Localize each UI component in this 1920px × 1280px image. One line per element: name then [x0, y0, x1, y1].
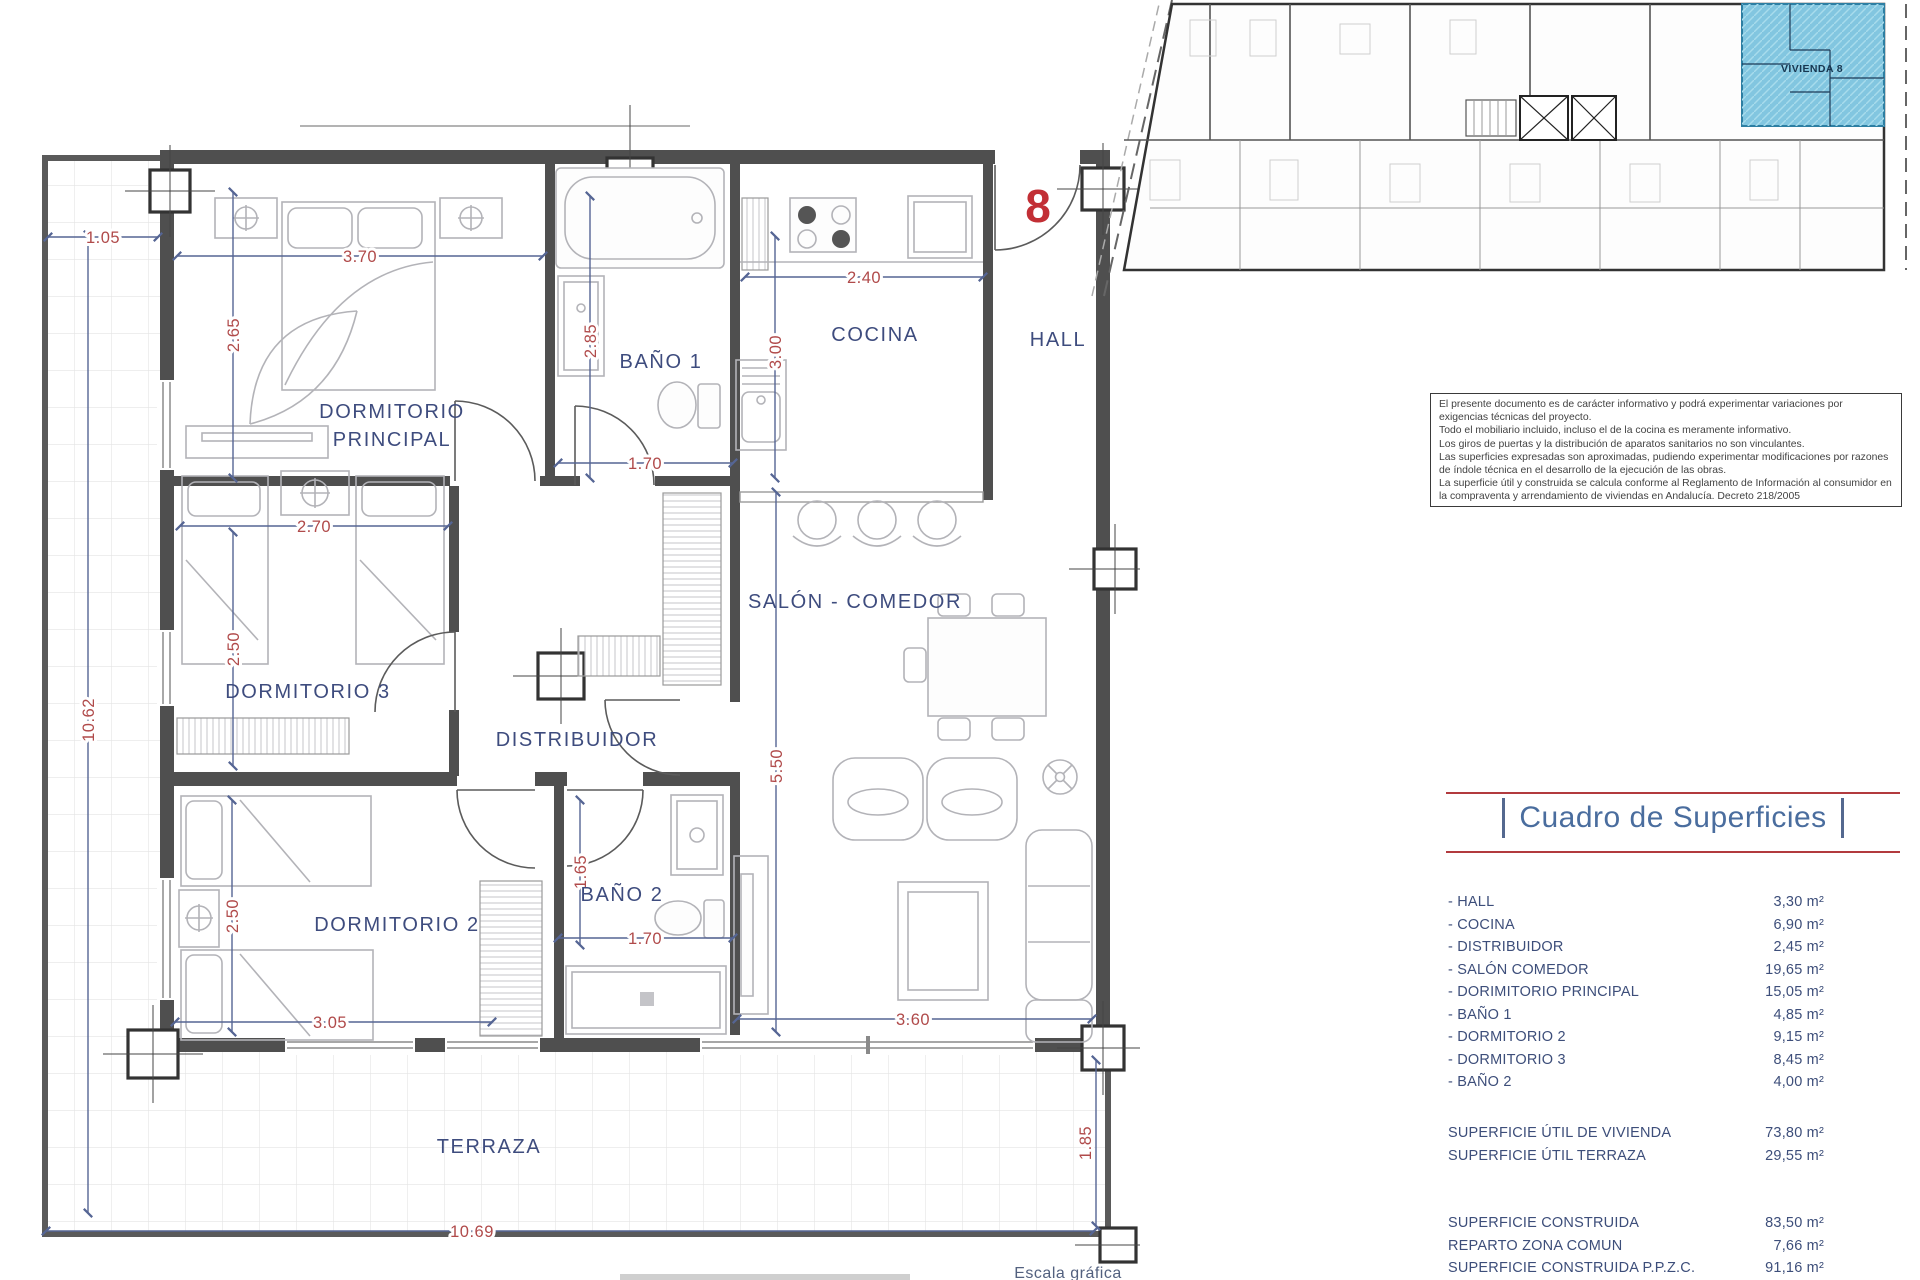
superficies-title-text: Cuadro de Superficies [1519, 801, 1826, 835]
disclaimer-line: Todo el mobiliario incluido, incluso el … [1439, 424, 1893, 437]
dim-label: 2.50 [225, 632, 243, 666]
room-area-value: 9,15 m² [1773, 1026, 1824, 1049]
unit-number: 8 [1025, 180, 1051, 232]
room-area-label: - BAÑO 2 [1448, 1071, 1512, 1094]
total-value: 83,50 m² [1765, 1212, 1824, 1235]
room-label-dormitorio-principal-2: PRINCIPAL [333, 429, 452, 451]
room-label-salon: SALÓN - COMEDOR [748, 590, 962, 613]
apartment-floor [160, 150, 1110, 1052]
dim-label: 5.50 [768, 749, 786, 783]
room-area-value: 6,90 m² [1773, 914, 1824, 937]
dim-label: 1.85 [1077, 1126, 1095, 1160]
highlighted-unit: VIVIENDA 8 [1742, 4, 1884, 126]
room-label-hall: HALL [1030, 329, 1086, 351]
room-label-distribuidor: DISTRIBUIDOR [496, 729, 659, 751]
room-area-value: 8,45 m² [1773, 1049, 1824, 1072]
superficies-title: Cuadro de Superficies [1446, 798, 1900, 838]
superficie-total-row: SUPERFICIE ÚTIL TERRAZA29,55 m² [1448, 1145, 1824, 1168]
highlighted-unit-label: VIVIENDA 8 [1781, 63, 1843, 75]
total-value: 73,80 m² [1765, 1122, 1824, 1145]
room-label-dormitorio-principal: DORMITORIO [319, 401, 465, 423]
dim-label: 10.69 [450, 1223, 494, 1241]
total-label: SUPERFICIE CONSTRUIDA [1448, 1212, 1639, 1235]
disclaimer-line: Las superficies expresadas son aproximad… [1439, 451, 1893, 464]
room-label-dormitorio3: DORMITORIO 3 [225, 681, 391, 703]
superficie-row: - HALL3,30 m² [1448, 891, 1824, 914]
dim-label: 1.70 [628, 455, 662, 473]
disclaimer-line: Los giros de puertas y la distribución d… [1439, 438, 1893, 451]
superficie-total-row: SUPERFICIE CONSTRUIDA83,50 m² [1448, 1212, 1824, 1235]
disclaimer-line: La superficie útil y construida se calcu… [1439, 477, 1893, 490]
superficie-row: - BAÑO 24,00 m² [1448, 1071, 1824, 1094]
drawing-sheet: 1.05 3.70 2.65 2.85 2.40 3.00 1.70 2.70 … [0, 0, 1920, 1280]
room-area-value: 4,00 m² [1773, 1071, 1824, 1094]
superficie-total-row: SUPERFICIE ÚTIL DE VIVIENDA73,80 m² [1448, 1122, 1824, 1145]
room-area-label: - DORMITORIO 2 [1448, 1026, 1566, 1049]
room-label-cocina: COCINA [831, 324, 918, 346]
room-area-label: - DISTRIBUIDOR [1448, 936, 1564, 959]
dim-label: 1.05 [86, 229, 120, 247]
room-area-value: 4,85 m² [1773, 1004, 1824, 1027]
dim-label: 3.60 [896, 1011, 930, 1029]
superficie-row: - DORMITORIO 38,45 m² [1448, 1049, 1824, 1072]
superficie-row: - BAÑO 14,85 m² [1448, 1004, 1824, 1027]
room-area-label: - DORMITORIO 3 [1448, 1049, 1566, 1072]
room-label-bano1: BAÑO 1 [620, 349, 703, 373]
construida-totals: SUPERFICIE CONSTRUIDA83,50 m² REPARTO ZO… [1448, 1212, 1824, 1280]
disclaimer-box: El presente documento es de carácter inf… [1430, 393, 1902, 507]
disclaimer-line: exigencias técnicas del proyecto. [1439, 411, 1893, 424]
dim-label: 2.65 [225, 318, 243, 352]
dim-label: 10.62 [80, 698, 98, 742]
disclaimer-line: de índole técnica en el desarrollo de la… [1439, 464, 1893, 477]
dim-label: 2.85 [582, 324, 600, 358]
total-value: 7,66 m² [1773, 1235, 1824, 1258]
util-totals: SUPERFICIE ÚTIL DE VIVIENDA73,80 m² SUPE… [1448, 1122, 1824, 1167]
superficie-row: - COCINA6,90 m² [1448, 914, 1824, 937]
room-area-label: - HALL [1448, 891, 1494, 914]
dim-label: 2.70 [297, 518, 331, 536]
scale-label: Escala gráfica [1014, 1265, 1122, 1280]
superficie-row: - DORMITORIO 29,15 m² [1448, 1026, 1824, 1049]
superficie-total-row: REPARTO ZONA COMUN7,66 m² [1448, 1235, 1824, 1258]
room-area-value: 2,45 m² [1773, 936, 1824, 959]
room-label-dormitorio2: DORMITORIO 2 [314, 914, 480, 936]
total-label: SUPERFICIE ÚTIL TERRAZA [1448, 1145, 1646, 1168]
room-label-bano2: BAÑO 2 [581, 882, 664, 906]
room-area-value: 19,65 m² [1765, 959, 1824, 982]
title-rule-top [1446, 792, 1900, 794]
title-bar-right [1841, 798, 1845, 838]
title-bar-left [1502, 798, 1506, 838]
dim-label: 2.40 [847, 269, 881, 287]
scale-bar [620, 1274, 910, 1280]
total-value: 29,55 m² [1765, 1145, 1824, 1168]
room-area-label: - BAÑO 1 [1448, 1004, 1512, 1027]
disclaimer-line: El presente documento es de carácter inf… [1439, 398, 1893, 411]
total-label: SUPERFICIE CONSTRUIDA P.P.Z.C. [1448, 1257, 1695, 1280]
superficie-total-row: SUPERFICIE CONSTRUIDA P.P.Z.C.91,16 m² [1448, 1257, 1824, 1280]
room-area-label: - DORIMITORIO PRINCIPAL [1448, 981, 1639, 1004]
room-area-value: 15,05 m² [1765, 981, 1824, 1004]
room-area-label: - COCINA [1448, 914, 1515, 937]
total-label: REPARTO ZONA COMUN [1448, 1235, 1622, 1258]
title-rule-bottom [1446, 851, 1900, 853]
key-plan: VIVIENDA 8 [1090, 0, 1920, 300]
floor-plan: 1.05 3.70 2.65 2.85 2.40 3.00 1.70 2.70 … [0, 0, 1140, 1280]
superficie-row: - DORIMITORIO PRINCIPAL15,05 m² [1448, 981, 1824, 1004]
disclaimer-line: la compraventa y arrendamiento de vivien… [1439, 490, 1893, 503]
dim-label: 1.70 [628, 930, 662, 948]
room-label-terraza: TERRAZA [437, 1136, 542, 1158]
dim-label: 2.50 [224, 899, 242, 933]
dim-label: 3.70 [343, 248, 377, 266]
room-area-value: 3,30 m² [1773, 891, 1824, 914]
dim-label: 3.00 [767, 335, 785, 369]
superficie-row: - SALÓN COMEDOR19,65 m² [1448, 959, 1824, 982]
superficie-row: - DISTRIBUIDOR2,45 m² [1448, 936, 1824, 959]
total-label: SUPERFICIE ÚTIL DE VIVIENDA [1448, 1122, 1671, 1145]
dim-label: 3.05 [313, 1014, 347, 1032]
room-area-label: - SALÓN COMEDOR [1448, 959, 1589, 982]
total-value: 91,16 m² [1765, 1257, 1824, 1280]
stair-core [1466, 96, 1616, 140]
room-areas-list: - HALL3,30 m² - COCINA6,90 m² - DISTRIBU… [1448, 891, 1824, 1094]
